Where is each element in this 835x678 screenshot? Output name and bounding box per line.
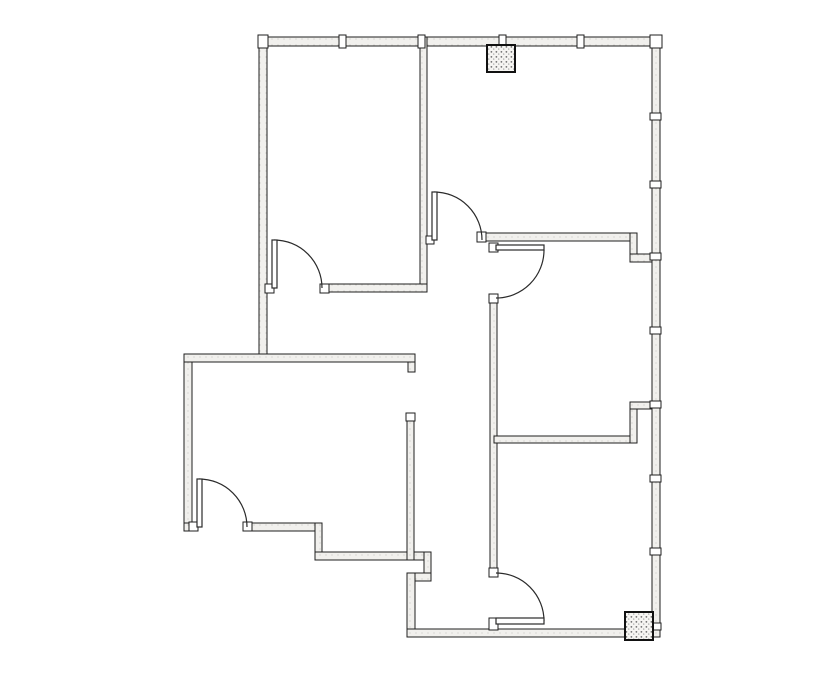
interior-wall-lowerleft-north-hook xyxy=(408,362,415,372)
door-jamb xyxy=(406,413,415,421)
door-leaf-upper-left-room-door xyxy=(272,240,277,288)
exterior-wall-lowerleft-south xyxy=(245,523,322,531)
interior-wall-upperleft-east xyxy=(420,37,427,292)
top-left-corner-post xyxy=(258,35,268,48)
interior-wall-upperleft-south xyxy=(322,284,427,292)
interior-wall-upperright-jog-horiz xyxy=(630,254,652,262)
window-mullion xyxy=(650,253,661,260)
exterior-wall-bottom xyxy=(407,629,660,637)
exterior-wall-bottomroom-west xyxy=(407,573,415,637)
window-mullion xyxy=(650,181,661,188)
exterior-wall-left-upper xyxy=(259,37,267,354)
exterior-wall-right xyxy=(652,37,660,637)
interior-wall-divider-jog-horiz xyxy=(630,402,652,409)
interior-wall-room-divider xyxy=(494,436,637,443)
window-mullion xyxy=(418,35,425,48)
interior-wall-lowerleft-east xyxy=(407,414,414,560)
window-mullion xyxy=(650,327,661,334)
door-leaf-upper-right-room-door xyxy=(432,192,437,240)
door-leaf-lower-right-room-door xyxy=(496,618,544,624)
door-leaf-middle-right-room-door xyxy=(496,245,544,250)
exterior-wall-top xyxy=(259,37,661,46)
window-mullion xyxy=(650,401,661,408)
top-right-corner-post xyxy=(650,35,662,48)
door-leaf-lower-left-room-door xyxy=(197,479,202,527)
exterior-wall-left-lower xyxy=(184,354,192,531)
interior-wall-lowerleft-north xyxy=(184,354,415,362)
window-mullion xyxy=(339,35,346,48)
window-mullion xyxy=(577,35,584,48)
window-mullion xyxy=(650,113,661,120)
window-mullion xyxy=(650,548,661,555)
top-shaft-column xyxy=(487,45,515,72)
bottom-right-shaft-column xyxy=(625,612,653,640)
floor-plan xyxy=(0,0,835,678)
window-mullion xyxy=(650,475,661,482)
floor-plan-drawing xyxy=(0,0,835,678)
interior-wall-upperright-south xyxy=(483,233,637,241)
